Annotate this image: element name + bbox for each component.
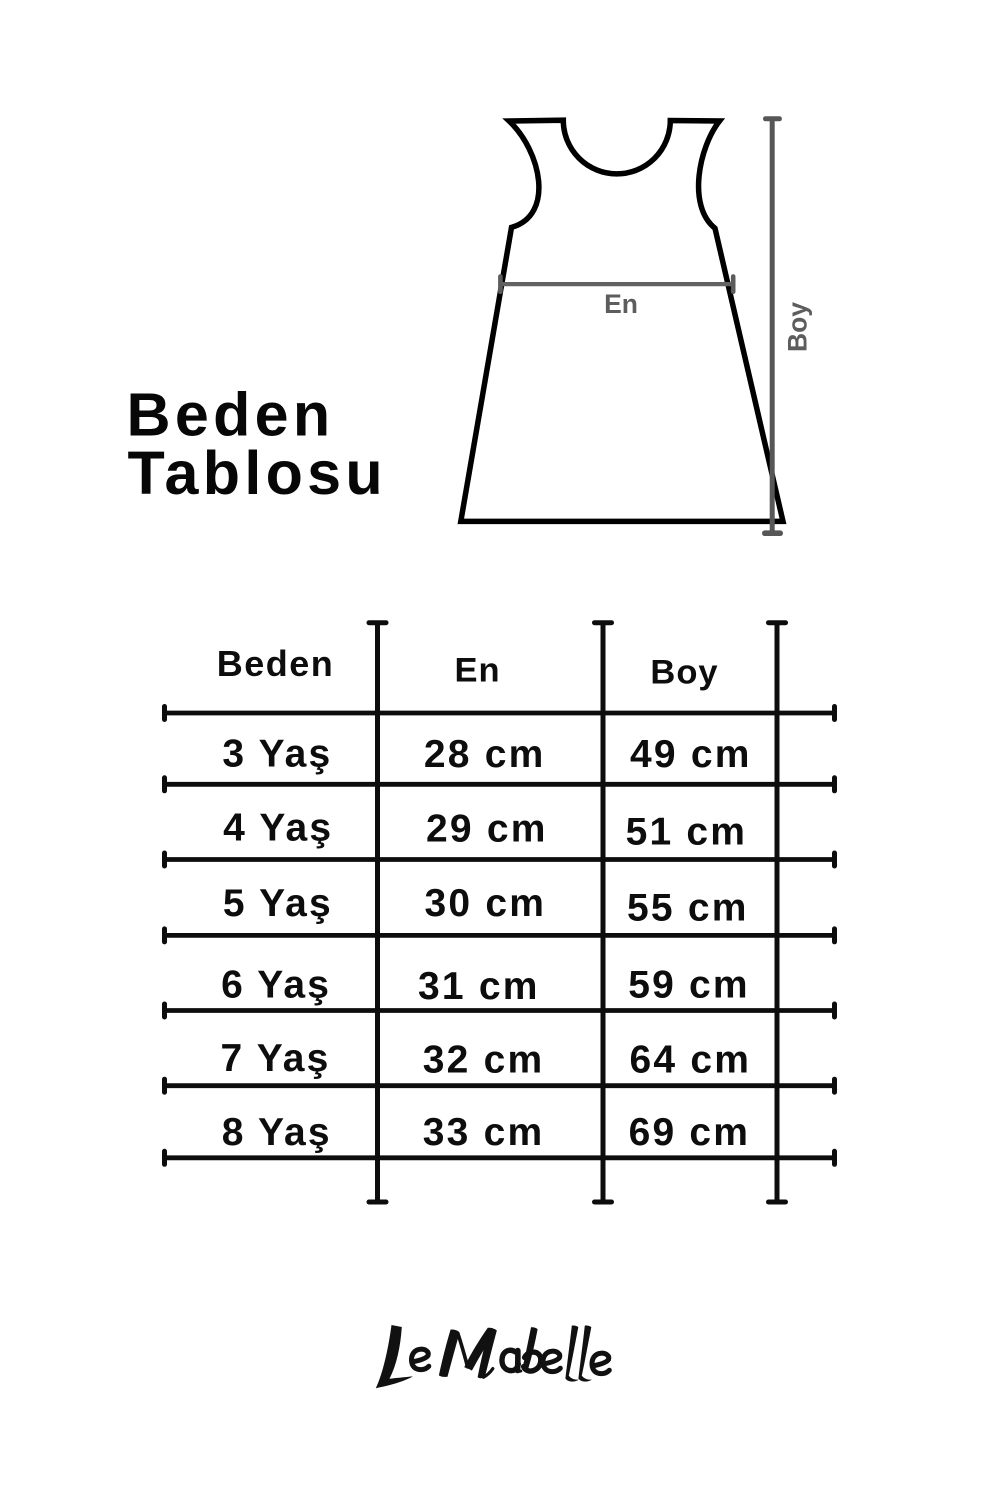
svg-text:5 Yaş: 5 Yaş: [223, 882, 333, 925]
svg-text:7 Yaş: 7 Yaş: [220, 1037, 330, 1080]
svg-text:69 cm: 69 cm: [629, 1111, 751, 1154]
svg-text:51 cm: 51 cm: [626, 810, 748, 853]
svg-text:31 cm: 31 cm: [418, 965, 540, 1008]
svg-text:28 cm: 28 cm: [424, 733, 546, 776]
svg-text:3 Yaş: 3 Yaş: [222, 732, 332, 775]
svg-text:6 Yaş: 6 Yaş: [221, 964, 331, 1007]
svg-text:64 cm: 64 cm: [630, 1039, 752, 1082]
svg-text:49 cm: 49 cm: [630, 733, 752, 776]
svg-text:Tablosu: Tablosu: [128, 439, 387, 507]
svg-text:55 cm: 55 cm: [627, 886, 749, 929]
svg-text:59 cm: 59 cm: [628, 964, 750, 1007]
svg-text:Beden: Beden: [217, 643, 335, 684]
svg-text:33 cm: 33 cm: [423, 1111, 545, 1154]
svg-text:Boy: Boy: [650, 653, 718, 691]
svg-text:En: En: [454, 652, 500, 690]
svg-text:Boy: Boy: [782, 302, 812, 352]
svg-text:4 Yaş: 4 Yaş: [223, 807, 333, 850]
svg-text:En: En: [604, 289, 638, 319]
svg-text:30 cm: 30 cm: [425, 882, 547, 925]
svg-text:8 Yaş: 8 Yaş: [222, 1111, 332, 1154]
svg-text:32 cm: 32 cm: [423, 1039, 545, 1082]
svg-text:29 cm: 29 cm: [426, 808, 548, 851]
